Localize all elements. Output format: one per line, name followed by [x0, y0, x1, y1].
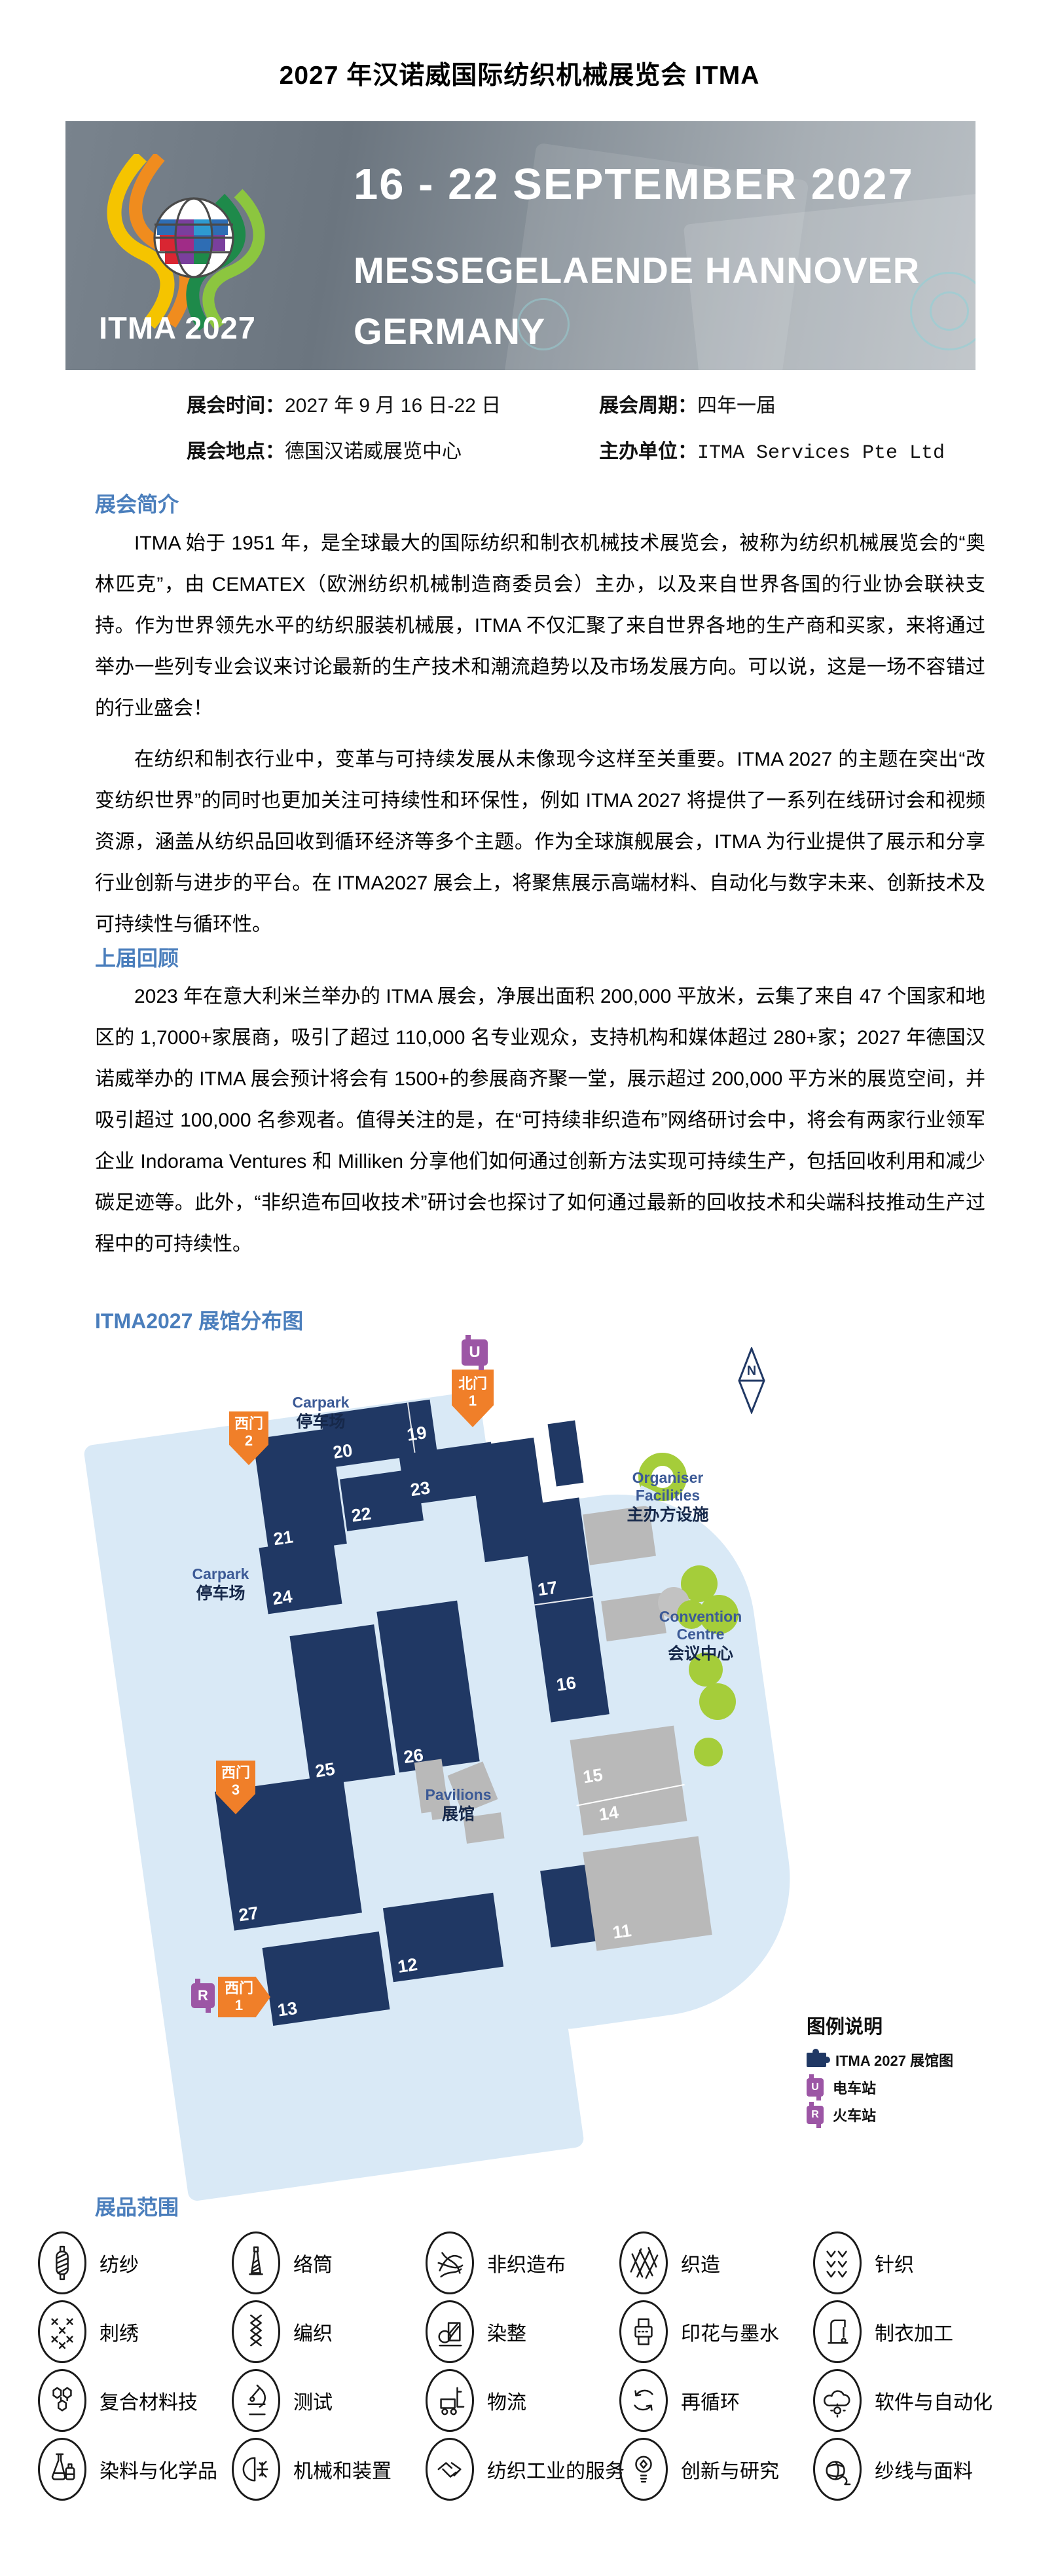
banner-text-block: 16 - 22 SEPTEMBER 2027 MESSEGELAENDE HAN… — [354, 159, 920, 352]
info-organiser: 主办单位：ITMA Services Pte Ltd — [599, 435, 945, 464]
legend-label: 火车站 — [833, 2104, 876, 2125]
tram-icon: U — [807, 2078, 824, 2097]
review-paragraph: 2023 年在意大利米兰举办的 ITMA 展会，净展出面积 200,000 平放… — [95, 976, 985, 1265]
hall-12: 12 — [383, 1893, 503, 1983]
services-icon — [426, 2438, 474, 2501]
section-heading-intro: 展会简介 — [95, 488, 179, 518]
scope-item-label: 染料与化学品 — [100, 2455, 217, 2484]
carpark-label-top: Carpark 停车场 — [278, 1394, 363, 1432]
hall-number: 17 — [536, 1577, 558, 1600]
carpark-zh: 停车场 — [178, 1583, 263, 1604]
scope-item: 复合材料技 — [38, 2366, 232, 2435]
scope-item: 络筒 — [232, 2228, 426, 2297]
banner-venue-line1: MESSEGELAENDE HANNOVER — [354, 249, 920, 291]
info-value: 德国汉诺威展览中心 — [285, 441, 462, 462]
scope-item-label: 复合材料技 — [100, 2386, 198, 2415]
scope-item-label: 软件与自动化 — [875, 2386, 993, 2415]
compass-north-icon: N — [737, 1347, 767, 1417]
convention-zh: 会议中心 — [645, 1643, 756, 1664]
hall-number: 27 — [238, 1903, 260, 1926]
scope-item: 非织造布 — [426, 2228, 619, 2297]
scope-item: 软件与自动化 — [813, 2366, 1007, 2435]
convention-en1: Convention — [645, 1608, 756, 1626]
map-legend: 图例说明 ITMA 2027 展馆图 U 电车站 R 火车站 — [807, 2011, 1023, 2132]
convention-greenery — [699, 1683, 736, 1720]
hall-number: 16 — [555, 1673, 577, 1696]
scope-item-label: 染整 — [487, 2317, 526, 2346]
gate-label: 3 — [232, 1782, 240, 1799]
hall-15-14: 1514 — [570, 1726, 687, 1836]
gate-label: 2 — [245, 1432, 253, 1449]
gate-label: 西门 — [221, 1764, 250, 1782]
pavilions-zh: 展馆 — [406, 1804, 511, 1825]
venue-map: 19202122232425262713121716151411 Carpark… — [0, 1339, 1039, 2184]
yarns-icon — [813, 2438, 862, 2501]
spinning-icon — [38, 2231, 86, 2294]
scope-item: 纺纱 — [38, 2228, 232, 2297]
tram-letter: U — [469, 1343, 480, 1362]
innovation-icon — [619, 2438, 668, 2501]
intro-paragraph-2: 在纺织和制衣行业中，变革与可持续发展从未像现今这样至关重要。ITMA 2027 … — [95, 739, 985, 945]
scope-item-label: 编织 — [293, 2317, 333, 2346]
hall-number: 13 — [276, 1998, 299, 2021]
scope-item-label: 纱线与面料 — [875, 2455, 973, 2484]
software-icon — [813, 2369, 862, 2432]
info-exhibition-venue: 展会地点：德国汉诺威展览中心 — [187, 435, 462, 464]
scope-item: 测试 — [232, 2366, 426, 2435]
itma-logo-text: ITMA 2027 — [69, 310, 285, 346]
recycling-icon — [619, 2369, 668, 2432]
hall-unlabeled — [548, 1421, 584, 1487]
scope-item-label: 物流 — [487, 2386, 526, 2415]
convention-centre-label: Convention Centre 会议中心 — [645, 1608, 756, 1664]
organiser-facilities-label: Organiser Facilities 主办方设施 — [609, 1469, 727, 1525]
scope-item-label: 印花与墨水 — [681, 2317, 779, 2346]
scope-item: 创新与研究 — [619, 2435, 813, 2503]
legend-row-hall: ITMA 2027 展馆图 — [807, 2049, 1023, 2070]
organiser-en1: Organiser — [609, 1469, 727, 1487]
organiser-en2: Facilities — [609, 1487, 727, 1504]
page-title: 2027 年汉诺威国际纺织机械展览会 ITMA — [0, 55, 1039, 92]
puzzle-icon — [807, 2053, 826, 2067]
legend-label: 电车站 — [833, 2077, 876, 2098]
tram-station-icon: U — [462, 1339, 488, 1366]
scope-item: 物流 — [426, 2366, 619, 2435]
info-value: ITMA Services Pte Ltd — [697, 442, 945, 464]
hall-number: 11 — [611, 1920, 633, 1943]
banner-venue-line2: GERMANY — [354, 310, 920, 352]
section-heading-scope: 展品范围 — [95, 2191, 179, 2221]
convention-en2: Centre — [645, 1626, 756, 1643]
scope-item-label: 创新与研究 — [681, 2455, 779, 2484]
carpark-zh: 停车场 — [278, 1411, 363, 1432]
scope-item-label: 纺织工业的服务 — [487, 2455, 625, 2484]
machinery-icon — [232, 2438, 280, 2501]
info-label: 展会时间： — [187, 395, 285, 417]
gate-label: 北门 — [458, 1375, 487, 1392]
scope-item: 针织 — [813, 2228, 1007, 2297]
hall-21: 21 — [253, 1428, 347, 1555]
gate-label: 1 — [235, 1997, 243, 2014]
logistics-icon — [426, 2369, 474, 2432]
info-label: 展会周期： — [599, 395, 697, 417]
banner-doodle-circle — [930, 291, 969, 331]
legend-title: 图例说明 — [807, 2011, 1023, 2039]
info-label: 主办单位： — [599, 441, 697, 462]
hall-number: 14 — [598, 1802, 620, 1825]
hall-number: 22 — [350, 1504, 373, 1527]
legend-label: ITMA 2027 展馆图 — [835, 2049, 953, 2070]
hall-24: 24 — [259, 1538, 342, 1615]
embroidery-icon — [38, 2300, 86, 2363]
compass-n: N — [747, 1364, 756, 1378]
nonwovens-icon — [426, 2231, 474, 2294]
gate-label: 西门 — [234, 1415, 263, 1432]
scope-item-label: 刺绣 — [100, 2317, 139, 2346]
scope-item-label: 再循环 — [681, 2386, 740, 2415]
hall-number: 24 — [271, 1586, 293, 1609]
scope-item: 再循环 — [619, 2366, 813, 2435]
finishing-icon — [426, 2300, 474, 2363]
scope-item: 刺绣 — [38, 2297, 232, 2366]
garment-icon — [813, 2300, 862, 2363]
hall-11: 11 — [583, 1836, 712, 1951]
scope-item: 织造 — [619, 2228, 813, 2297]
scope-item: 纺织工业的服务 — [426, 2435, 619, 2503]
scope-item: 编织 — [232, 2297, 426, 2366]
hall-number: 19 — [406, 1423, 428, 1446]
scope-item-label: 测试 — [293, 2386, 333, 2415]
legend-row-tram: U 电车站 — [807, 2077, 1023, 2098]
legend-row-train: R 火车站 — [807, 2104, 1023, 2125]
scope-item-label: 纺纱 — [100, 2249, 139, 2277]
scope-item-label: 制衣加工 — [875, 2317, 953, 2346]
pavilions-label: Pavilions 展馆 — [406, 1786, 511, 1825]
printing-icon — [619, 2300, 668, 2363]
page: { "page": { "title": "2027 年汉诺威国际纺织机械展览会… — [0, 0, 1039, 2576]
info-exhibition-cycle: 展会周期：四年一届 — [599, 389, 776, 418]
scope-item-label: 机械和装置 — [293, 2455, 392, 2484]
pavilions-en: Pavilions — [406, 1786, 511, 1804]
knitting-icon — [813, 2231, 862, 2294]
train-letter: R — [198, 1987, 208, 2004]
carpark-label-left: Carpark 停车场 — [178, 1565, 263, 1604]
scope-item: 纱线与面料 — [813, 2435, 1007, 2503]
info-value: 2027 年 9 月 16 日-22 日 — [285, 395, 501, 417]
scope-grid: 纺纱络筒非织造布织造针织刺绣编织染整印花与墨水制衣加工复合材料技测试物流再循环软… — [38, 2228, 1007, 2503]
scope-item-label: 非织造布 — [487, 2249, 566, 2277]
composites-icon — [38, 2369, 86, 2432]
section-heading-map: ITMA2027 展馆分布图 — [95, 1305, 303, 1335]
weaving-icon — [619, 2231, 668, 2294]
info-exhibition-time: 展会时间：2027 年 9 月 16 日-22 日 — [187, 389, 501, 418]
scope-item: 染料与化学品 — [38, 2435, 232, 2503]
hall-13: 13 — [263, 1932, 390, 2026]
intro-paragraph-1: ITMA 始于 1951 年，是全球最大的国际纺织和制衣机械技术展览会，被称为纺… — [95, 523, 985, 729]
train-station-icon: R — [191, 1983, 215, 2008]
scope-item-label: 织造 — [681, 2249, 720, 2277]
info-value: 四年一届 — [697, 395, 776, 417]
scope-item: 印花与墨水 — [619, 2297, 813, 2366]
train-icon: R — [807, 2106, 824, 2124]
organiser-zh: 主办方设施 — [609, 1504, 727, 1525]
banner-dates: 16 - 22 SEPTEMBER 2027 — [354, 159, 920, 210]
scope-item-label: 络筒 — [293, 2249, 333, 2277]
hall-number: 15 — [582, 1765, 604, 1788]
testing-icon — [232, 2369, 280, 2432]
section-heading-review: 上届回顾 — [95, 942, 179, 972]
gate-label: 西门 — [225, 1980, 253, 1997]
info-label: 展会地点： — [187, 441, 285, 462]
scope-item: 染整 — [426, 2297, 619, 2366]
winding-icon — [232, 2231, 280, 2294]
banner-image: ITMA 2027 16 - 22 SEPTEMBER 2027 MESSEGE… — [65, 121, 975, 370]
scope-item-label: 针织 — [875, 2249, 914, 2277]
braiding-icon — [232, 2300, 280, 2363]
chemicals-icon — [38, 2438, 86, 2501]
scope-item: 机械和装置 — [232, 2435, 426, 2503]
hall-number: 12 — [397, 1954, 419, 1977]
convention-greenery — [694, 1738, 723, 1766]
scope-item: 制衣加工 — [813, 2297, 1007, 2366]
hall-number: 23 — [409, 1478, 431, 1501]
gate-label: 1 — [469, 1392, 477, 1409]
carpark-en: Carpark — [178, 1565, 263, 1583]
carpark-en: Carpark — [278, 1394, 363, 1411]
